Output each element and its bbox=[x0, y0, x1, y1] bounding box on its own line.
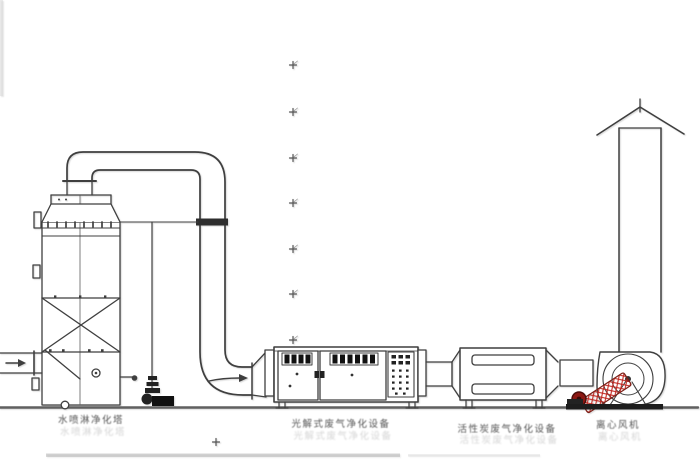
chimney-stack bbox=[597, 99, 684, 352]
scan-artifact bbox=[0, 0, 3, 96]
process-flow-diagram-page: 水喷淋净化塔 光解式废气净化设备 活性炭废气净化设备 离心风机 水喷淋净化塔 光… bbox=[0, 0, 700, 462]
label-spray-tower-ghost: 水喷淋净化塔 bbox=[48, 424, 138, 438]
scan-artifact-band bbox=[46, 454, 540, 457]
spray-tower bbox=[0, 181, 198, 409]
uv-photolysis-unit bbox=[265, 347, 426, 408]
process-flow-diagram bbox=[0, 0, 700, 462]
label-fan-ghost: 离心风机 bbox=[592, 429, 648, 443]
rain-cap-icon bbox=[597, 99, 684, 135]
activated-carbon-unit bbox=[452, 348, 558, 408]
inlet-flow-arrow-icon bbox=[6, 359, 26, 367]
label-carbon-unit-ghost: 活性炭废气净化设备 bbox=[455, 432, 563, 446]
fan-inlet-box bbox=[560, 360, 593, 386]
centrifugal-fan bbox=[560, 352, 665, 413]
label-uv-unit-ghost: 光解式废气净化设备 bbox=[290, 428, 396, 442]
circulation-pump-icon bbox=[142, 394, 175, 407]
drain-valve-icon bbox=[132, 375, 138, 381]
fan-base-plate bbox=[566, 404, 663, 410]
duct-damper bbox=[196, 219, 228, 226]
circulation-pipe bbox=[120, 222, 198, 406]
interconnect-duct bbox=[426, 362, 452, 386]
drain-port-icon bbox=[61, 401, 69, 409]
pipe-valve-icon bbox=[145, 376, 160, 393]
duct-flow-arrow-icon bbox=[209, 374, 248, 382]
diagram-linework bbox=[0, 0, 698, 457]
